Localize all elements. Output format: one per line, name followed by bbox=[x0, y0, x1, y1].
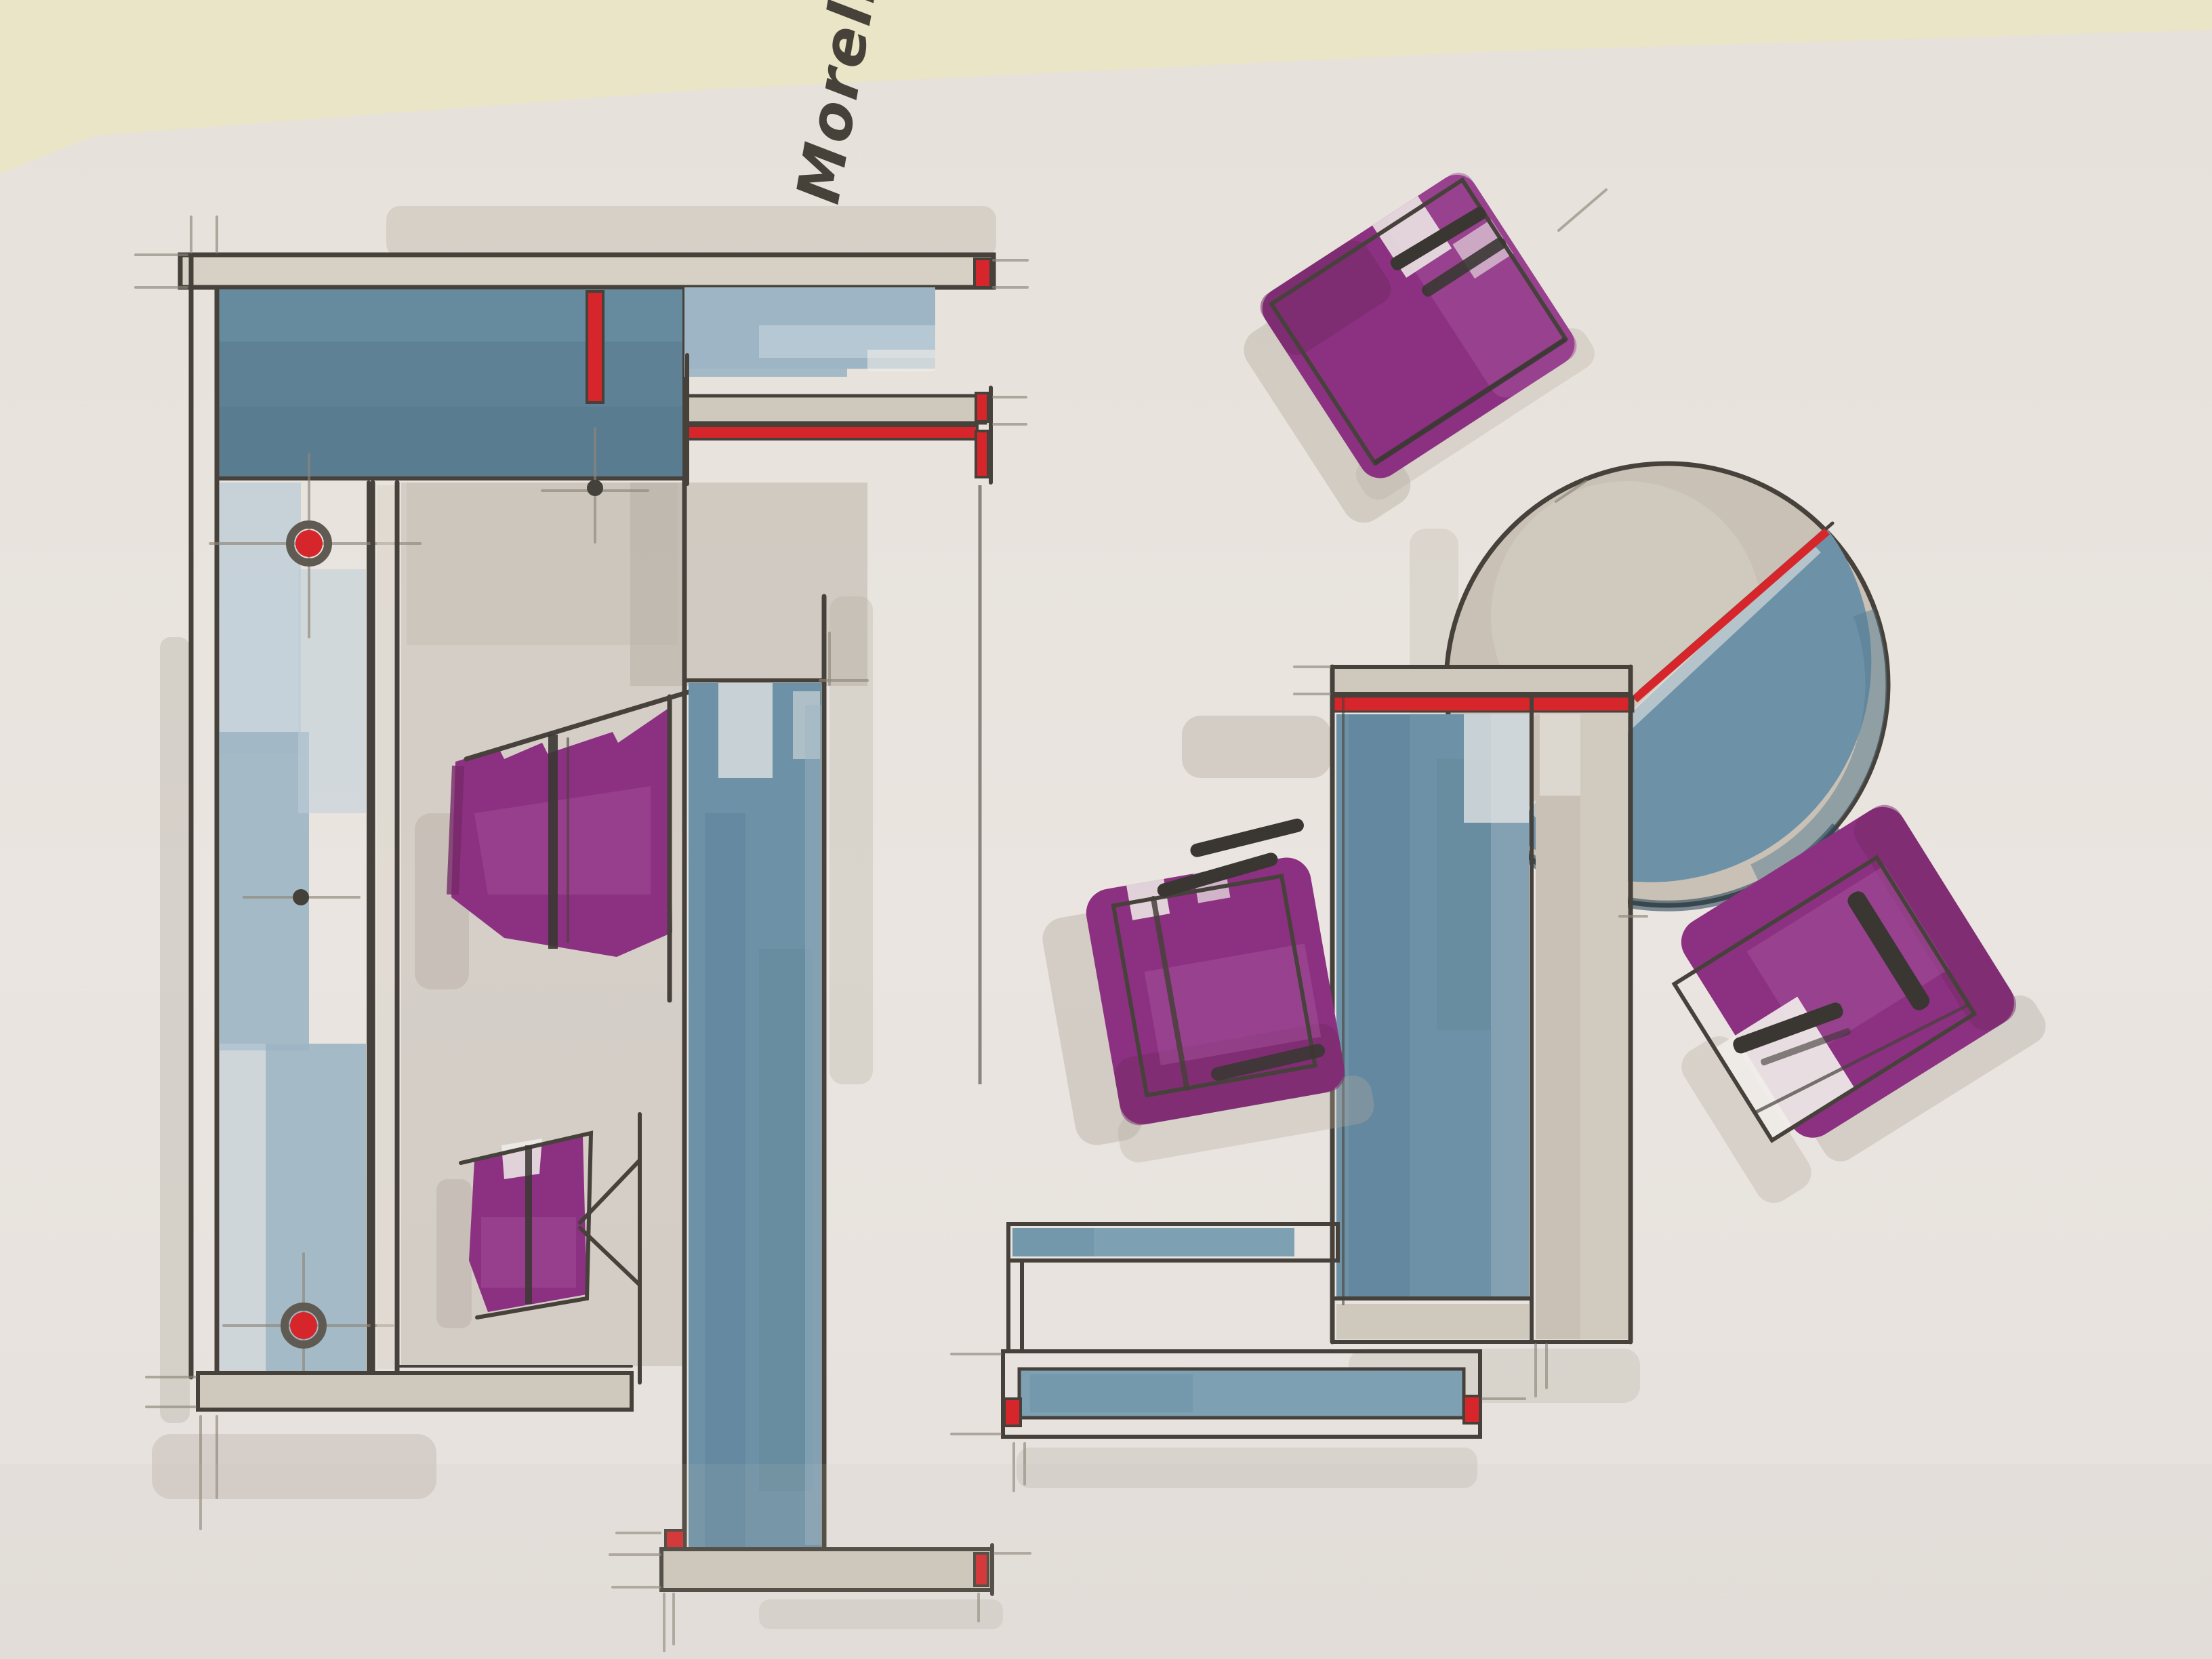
top-wall-strip bbox=[180, 255, 994, 287]
marker-streak bbox=[217, 407, 684, 478]
marker-streak bbox=[220, 1044, 266, 1372]
marker-streak bbox=[1012, 1228, 1094, 1256]
red-end-cap bbox=[1464, 1396, 1480, 1423]
red-tick bbox=[587, 291, 603, 403]
desk-top-strip bbox=[1332, 667, 1631, 694]
desk-return-fill bbox=[1336, 1304, 1529, 1339]
marker-streak bbox=[217, 287, 684, 342]
partition-fill bbox=[377, 485, 394, 1369]
marker-gap bbox=[718, 683, 773, 778]
marker-gap bbox=[1464, 714, 1529, 823]
marker-gap bbox=[867, 350, 935, 371]
red-end-cap bbox=[1004, 1399, 1021, 1426]
marker-streak bbox=[805, 705, 821, 1545]
marker-streak bbox=[1030, 1374, 1193, 1412]
pencil-dot bbox=[293, 889, 309, 905]
red-end-cap bbox=[975, 259, 991, 287]
red-stripe bbox=[687, 426, 977, 439]
marker-sketch-photo: Morello '18 bbox=[0, 0, 2212, 1659]
marker-gap bbox=[1540, 714, 1580, 796]
red-end-cap bbox=[976, 431, 988, 477]
red-stripe bbox=[1332, 697, 1633, 712]
shadow-wash bbox=[1182, 716, 1331, 778]
marker-streak bbox=[1580, 714, 1628, 1339]
shadow-wash bbox=[407, 483, 678, 645]
red-knob bbox=[295, 530, 323, 557]
marker-edge bbox=[453, 766, 458, 895]
marker-streak bbox=[220, 483, 301, 754]
red-end-cap bbox=[976, 393, 988, 422]
photo-vignette bbox=[0, 1464, 2212, 1659]
marker-streak bbox=[705, 813, 745, 1549]
shadow-wash bbox=[829, 596, 873, 1084]
counter-strip bbox=[687, 396, 985, 423]
shadow-wash bbox=[386, 206, 996, 258]
marker-streak bbox=[1349, 714, 1410, 1298]
pencil-dot bbox=[587, 480, 603, 496]
chair-shadow bbox=[436, 1179, 472, 1328]
shadow-wash bbox=[160, 637, 190, 1423]
red-knob bbox=[290, 1312, 317, 1339]
bottom-wall-strip bbox=[198, 1373, 632, 1410]
